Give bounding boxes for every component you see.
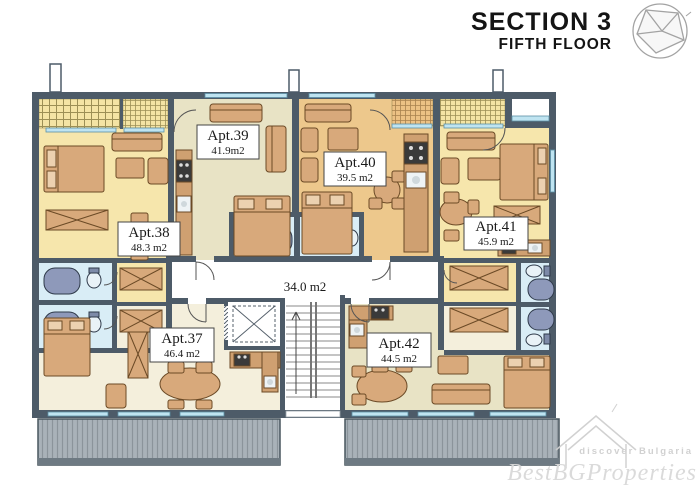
apt42-name: Apt.42 [378, 336, 419, 352]
apt38-area: 48.3 m2 [131, 242, 167, 254]
watermark-brand: BestBGProperties [507, 460, 697, 486]
apt42-label: Apt.42 44.5 m2 [367, 333, 431, 367]
apt39-label: Apt.39 41.9m2 [197, 125, 259, 159]
title-block: SECTION 3 FIFTH FLOOR [471, 4, 691, 58]
apt42-area: 44.5 m2 [381, 353, 417, 365]
apt40-label: Apt.40 39.5 m2 [324, 152, 386, 186]
watermark-tagline: discover Bulgaria [579, 446, 693, 457]
compass-logo-icon [633, 4, 691, 58]
balcony-apt40 [392, 99, 433, 126]
apt37-name: Apt.37 [161, 331, 203, 347]
balcony-apt38-a [39, 99, 120, 128]
apt40-name: Apt.40 [334, 155, 375, 171]
entrance-walkway [286, 411, 340, 417]
section-title: SECTION 3 [471, 8, 612, 36]
apt41-label: Apt.41 45.9 m2 [464, 217, 528, 250]
floor-plan-canvas: Apt.38 48.3 m2 Apt.39 41.9m2 Apt.40 39.5… [0, 0, 700, 494]
apt38-name: Apt.38 [128, 225, 169, 241]
terrace-left-edge [38, 458, 280, 465]
apt41-area: 45.9 m2 [478, 236, 514, 248]
watermark-house-icon [556, 404, 636, 468]
apt39-area: 41.9m2 [211, 145, 244, 157]
apt38-label: Apt.38 48.3 m2 [118, 222, 180, 256]
floor-subtitle: FIFTH FLOOR [499, 36, 612, 53]
elevator-door [224, 306, 228, 340]
apt37-label: Apt.37 46.4 m2 [150, 328, 214, 362]
terraces [38, 419, 559, 465]
corridor-area-label: 34.0 m2 [284, 279, 327, 294]
balcony-apt38-b [123, 99, 168, 128]
apt37-area: 46.4 m2 [164, 348, 200, 360]
floor-plan-page: Apt.38 48.3 m2 Apt.39 41.9m2 Apt.40 39.5… [0, 0, 700, 494]
balcony-apt41 [440, 99, 505, 126]
apt40-area: 39.5 m2 [337, 172, 373, 184]
apt39-name: Apt.39 [207, 128, 248, 144]
apt41-name: Apt.41 [475, 219, 516, 235]
